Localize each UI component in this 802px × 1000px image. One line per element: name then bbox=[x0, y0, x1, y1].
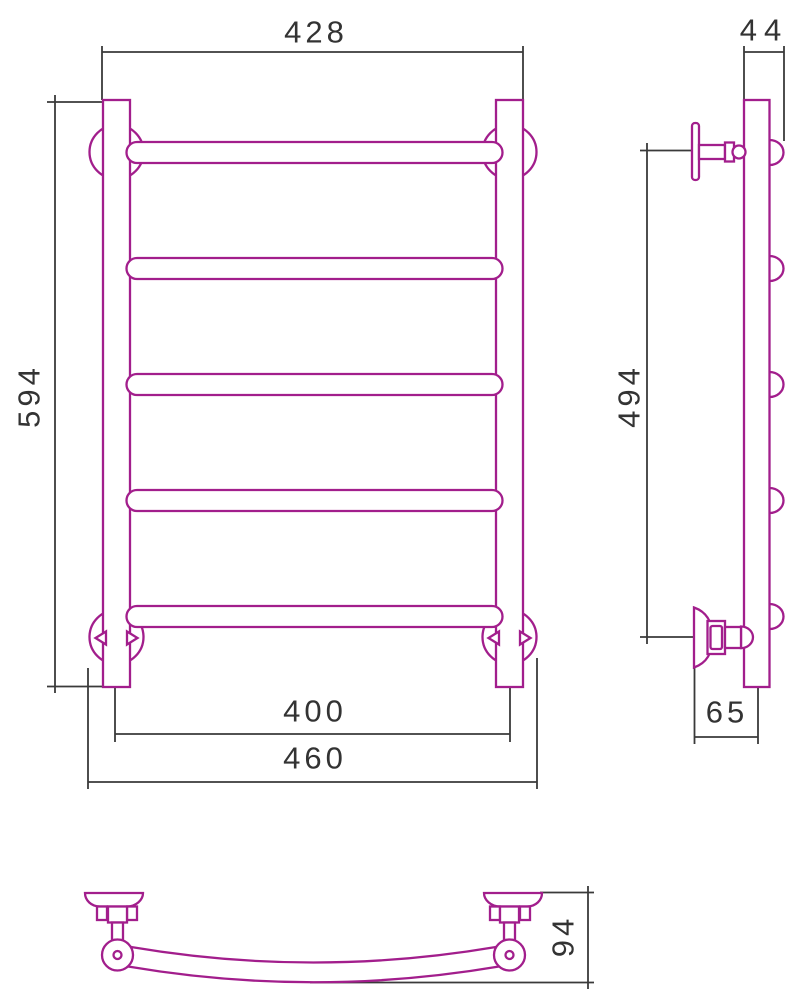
side-view bbox=[692, 100, 784, 687]
technical-drawing-svg bbox=[0, 0, 802, 1000]
top-right-tab-b bbox=[520, 907, 530, 921]
top-left-post-center bbox=[114, 951, 122, 959]
rail-2 bbox=[127, 258, 503, 279]
dim-428-lines bbox=[102, 46, 523, 100]
side-bottom-cylinder bbox=[725, 627, 741, 648]
dim-label-axis-spacing-width: 400 bbox=[283, 696, 347, 727]
top-view bbox=[85, 893, 542, 982]
dim-label-bracket-axis-height: 494 bbox=[614, 364, 645, 428]
front-view bbox=[90, 100, 537, 687]
side-top-bracket bbox=[692, 123, 746, 180]
dim-label-overall-width: 428 bbox=[284, 17, 348, 48]
rail-5 bbox=[127, 606, 503, 627]
side-top-stem bbox=[699, 145, 725, 159]
dim-label-wall-to-axis-depth: 65 bbox=[706, 697, 748, 728]
left-post bbox=[103, 100, 130, 687]
side-top-knob bbox=[733, 146, 746, 159]
dimension-lines bbox=[47, 46, 784, 989]
top-right-flange bbox=[484, 893, 542, 907]
side-rail-ends bbox=[770, 140, 784, 629]
rail-4 bbox=[127, 490, 503, 511]
top-left-tab-a bbox=[97, 907, 107, 921]
top-right-stem-lower bbox=[504, 923, 515, 941]
top-right-stem bbox=[500, 907, 519, 923]
top-left-stem-lower bbox=[112, 923, 123, 941]
top-right-post-center bbox=[506, 951, 514, 959]
dim-label-wall-to-front-depth: 94 bbox=[548, 915, 579, 957]
dim-label-overall-height: 594 bbox=[14, 364, 45, 428]
top-right-tab-a bbox=[490, 907, 500, 921]
side-post bbox=[744, 100, 770, 687]
dim-label-bracket-outer-width: 460 bbox=[283, 743, 347, 774]
rail-1 bbox=[127, 142, 503, 163]
top-left-tab-b bbox=[127, 907, 137, 921]
top-left-stem bbox=[108, 907, 127, 923]
bowed-rail bbox=[128, 947, 499, 982]
dim-494-lines bbox=[640, 143, 694, 644]
dim-label-top-depth: 44 bbox=[740, 15, 788, 46]
top-left-flange bbox=[85, 893, 143, 907]
drawing-canvas: 428 44 594 494 400 460 65 94 bbox=[0, 0, 802, 1000]
right-post bbox=[496, 100, 523, 687]
side-bottom-nut-facet bbox=[711, 626, 723, 649]
dim-594-lines bbox=[47, 95, 103, 693]
rail-3 bbox=[127, 374, 503, 395]
